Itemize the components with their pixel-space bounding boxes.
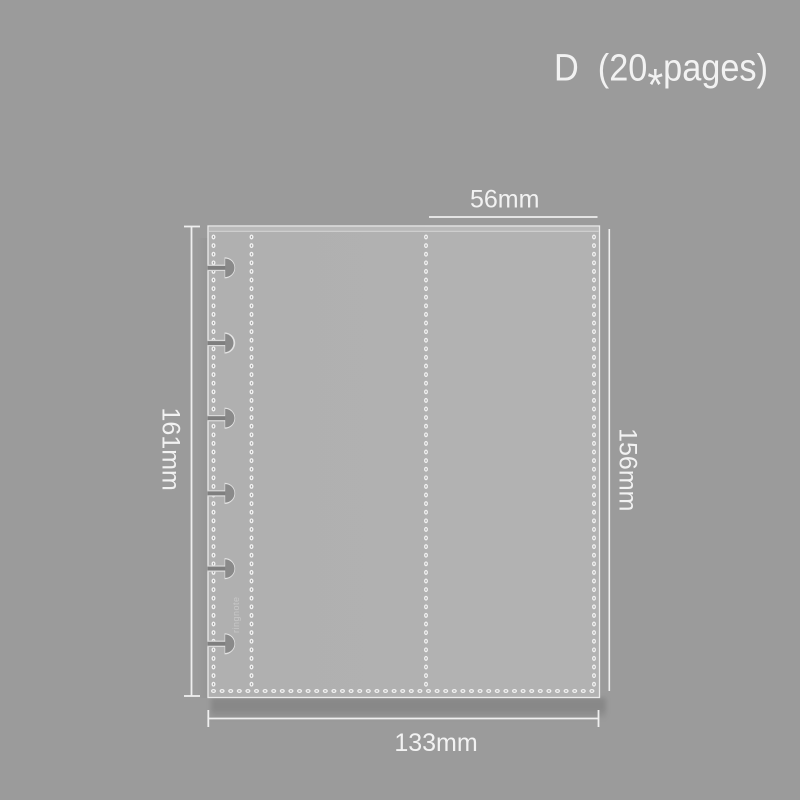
svg-text:161mm: 161mm: [157, 408, 185, 491]
svg-text:ringnote: ringnote: [231, 596, 241, 633]
svg-text:56mm: 56mm: [470, 186, 539, 214]
svg-text:156mm: 156mm: [614, 428, 642, 511]
svg-text:133mm: 133mm: [394, 729, 477, 757]
